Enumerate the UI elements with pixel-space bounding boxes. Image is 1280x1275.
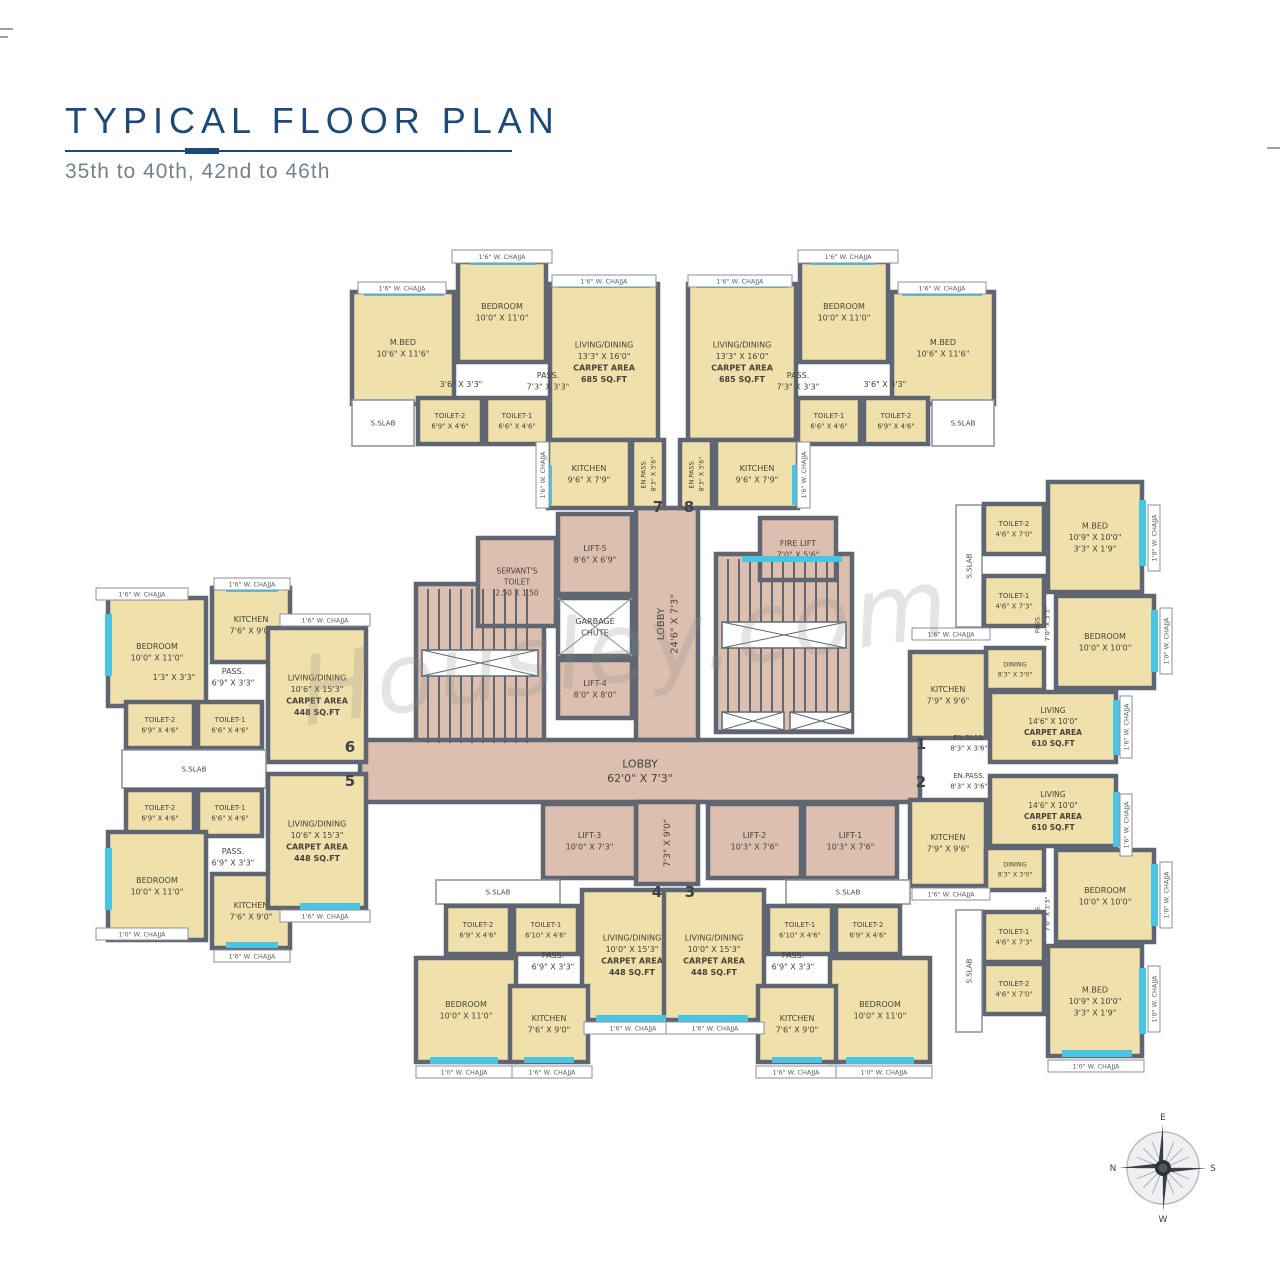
room-label-sslab-56: S.SLAB xyxy=(182,765,207,773)
chajja-label: 1'6" W. CHAJJA xyxy=(358,282,446,294)
room-toilet2-3: TOILET-26'9" X 4'6" xyxy=(836,906,900,954)
room-label-corridor-lifts: 7'3" X 9'0" xyxy=(663,819,673,867)
chajja-label: 1'6" W. CHAJJA xyxy=(280,910,370,922)
chajja-label: 1'6" W. CHAJJA xyxy=(452,250,552,263)
room-label-enpass-2: EN.PASS.8'3" X 3'6" xyxy=(950,772,987,791)
room-living-7: LIVING/DINING13'3" X 16'0"CARPET AREA685… xyxy=(550,284,658,440)
svg-text:1'6" W. CHAJJA: 1'6" W. CHAJJA xyxy=(825,253,873,261)
chajja-label: 1'6" W. CHAJJA xyxy=(512,1066,592,1078)
chajja-label: 1'6" W. CHAJJA xyxy=(96,588,188,600)
svg-text:1'0" W. CHAJJA: 1'0" W. CHAJJA xyxy=(1073,1062,1121,1070)
chajja-label: 1'6" W. CHAJJA xyxy=(214,578,290,590)
window-strip xyxy=(1113,700,1120,755)
room-kitchen-3: KITCHEN7'6" X 9'0" xyxy=(758,986,836,1062)
svg-text:1'6" W. CHAJJA: 1'6" W. CHAJJA xyxy=(919,284,967,292)
svg-text:1'0" W. CHAJJA: 1'0" W. CHAJJA xyxy=(1150,975,1158,1023)
landing-box xyxy=(790,712,852,730)
room-mbed-8: M.BED10'6" X 11'6" xyxy=(892,292,994,404)
room-lift-2: LIFT-210'3" X 7'6" xyxy=(708,804,801,878)
room-bedroom-3: BEDROOM10'0" X 11'0" xyxy=(830,958,930,1062)
window-strip xyxy=(596,1015,666,1022)
room-label-sslab-2: S.SLAB xyxy=(965,958,973,983)
window-strip xyxy=(772,1057,822,1063)
room-sslab-3: S.SLAB xyxy=(786,880,910,904)
room-toilet2-8: TOILET-26'9" X 4'6" xyxy=(864,398,928,444)
svg-text:1'6" W. CHAJJA: 1'6" W. CHAJJA xyxy=(717,277,765,285)
room-bedroom-5: BEDROOM10'0" X 11'0" xyxy=(108,832,206,940)
room-bedroom-2: BEDROOM10'0" X 10'0" xyxy=(1056,850,1154,942)
svg-text:1'0" W. CHAJJA: 1'0" W. CHAJJA xyxy=(861,1068,909,1076)
svg-text:1'0" W. CHAJJA: 1'0" W. CHAJJA xyxy=(119,930,167,938)
compass-label-right: S xyxy=(1210,1164,1216,1174)
svg-text:1'0" W. CHAJJA: 1'0" W. CHAJJA xyxy=(1150,514,1158,562)
room-toilet1-7: TOILET-16'6" X 4'6" xyxy=(486,398,548,444)
svg-text:1'6" W. CHAJJA: 1'6" W. CHAJJA xyxy=(119,590,167,598)
room-living-8: LIVING/DINING13'3" X 16'0"CARPET AREA685… xyxy=(688,284,796,440)
svg-text:1'6" W. CHAJJA: 1'6" W. CHAJJA xyxy=(692,1024,740,1032)
window-strip xyxy=(1113,792,1120,847)
svg-text:1'6" W. CHAJJA: 1'6" W. CHAJJA xyxy=(229,580,277,588)
room-label-enpass-1: EN.PASS.8'3" X 3'6" xyxy=(950,734,987,753)
room-toilet2-2: TOILET-24'6" X 7'0" xyxy=(984,964,1044,1014)
room-sslab-7: S.SLAB xyxy=(352,400,414,446)
room-label-pass-6: PASS.6'9" X 3'3" xyxy=(212,667,255,688)
window-strip xyxy=(1151,864,1158,926)
room-sslab-4: S.SLAB xyxy=(436,880,560,904)
room-living-1: LIVING14'6" X 10'0"CARPET AREA610 SQ.FT xyxy=(990,692,1116,762)
room-bedroom-7: BEDROOM10'0" X 11'0" xyxy=(458,262,546,362)
chajja-label: 1'6" W. CHAJJA xyxy=(666,1022,764,1034)
svg-text:1'6" W. CHAJJA: 1'6" W. CHAJJA xyxy=(1122,801,1130,849)
compass-rose: ESWN xyxy=(1110,1113,1217,1225)
compass-label-top: E xyxy=(1160,1113,1166,1123)
room-sslab-8: S.SLAB xyxy=(932,400,994,446)
room-pass-6: PASS.6'9" X 3'3" xyxy=(212,667,255,688)
room-toilet2-4: TOILET-26'9" X 4'6" xyxy=(446,906,510,954)
svg-text:1'0" W. CHAJJA: 1'0" W. CHAJJA xyxy=(1162,617,1170,665)
room-living-5: LIVING/DINING10'6" X 15'3"CARPET AREA448… xyxy=(268,774,366,908)
chajja-label: 1'6" W. CHAJJA xyxy=(912,888,990,900)
room-toilet1-5: TOILET-16'6" X 4'6" xyxy=(198,790,262,836)
chajja-label: 1'6" W. CHAJJA xyxy=(756,1066,836,1078)
room-sslab-1: S.SLAB xyxy=(956,505,982,627)
landing-box xyxy=(722,712,784,730)
window-strip xyxy=(678,1015,748,1022)
svg-text:1'6" W. CHAJJA: 1'6" W. CHAJJA xyxy=(800,451,808,499)
unit-number-3: 3 xyxy=(685,883,695,901)
room-dining-2: DINING8'3" X 3'0" xyxy=(986,848,1044,890)
room-sslab-56: S.SLAB xyxy=(122,750,266,788)
svg-text:1'6" W. CHAJJA: 1'6" W. CHAJJA xyxy=(302,912,350,920)
room-kitchen-4: KITCHEN7'6" X 9'0" xyxy=(510,986,588,1062)
room-label-sslab-1: S.SLAB xyxy=(965,553,973,578)
chajja-label: 1'6" W. CHAJJA xyxy=(1120,794,1132,856)
room-label-dim-8: 3'6" X 3'3" xyxy=(864,380,907,389)
chajja-label: 1'6" W. CHAJJA xyxy=(797,442,810,508)
room-toilet1-3: TOILET-16'10" X 4'6" xyxy=(768,906,832,954)
chajja-label: 1'0" W. CHAJJA xyxy=(1160,862,1172,928)
compass-label-left: N xyxy=(1110,1164,1117,1174)
unit-number-4: 4 xyxy=(652,883,662,901)
room-label-dim-7: 3'6" X 3'3" xyxy=(440,380,483,389)
room-lift-5: LIFT-58'6" X 6'9" xyxy=(558,514,632,594)
room-lift-3: LIFT-310'0" X 7'3" xyxy=(543,804,636,878)
room-sslab-2: S.SLAB xyxy=(956,910,982,1032)
room-bedroom-1: BEDROOM10'0" X 10'0" xyxy=(1056,596,1154,688)
svg-text:1'0" W. CHAJJA: 1'0" W. CHAJJA xyxy=(441,1068,489,1076)
room-pass-5: PASS.6'9" X 3'3" xyxy=(212,847,255,868)
chajja-label: 1'0" W. CHAJJA xyxy=(96,928,188,940)
window-strip xyxy=(524,1057,574,1063)
chajja-label: 1'0" W. CHAJJA xyxy=(836,1066,932,1078)
room-bedroom-6: BEDROOM10'0" X 11'0" xyxy=(108,598,206,706)
svg-text:1'6" W. CHAJJA: 1'6" W. CHAJJA xyxy=(773,1068,821,1076)
room-toilet2-5: TOILET-26'9" X 4'6" xyxy=(126,790,194,836)
chajja-label: 1'6" W. CHAJJA xyxy=(688,275,792,287)
room-label-sslab-4: S.SLAB xyxy=(486,888,511,896)
svg-text:1'6" W. CHAJJA: 1'6" W. CHAJJA xyxy=(529,1068,577,1076)
chajja-label: 1'0" W. CHAJJA xyxy=(416,1066,512,1078)
room-toilet1-4: TOILET-16'10" X 4'6" xyxy=(514,906,578,954)
room-toilet2-7: TOILET-26'9" X 4'6" xyxy=(418,398,482,444)
room-kitchen-8: KITCHEN9'6" X 7'9" xyxy=(716,440,798,508)
window-strip xyxy=(1139,968,1146,1034)
room-mbed-2: M.BED10'9" X 10'0"3'3" X 1'9" xyxy=(1048,946,1142,1056)
svg-text:1'6" W. CHAJJA: 1'6" W. CHAJJA xyxy=(479,253,527,261)
room-toilet1-8: TOILET-16'6" X 4'6" xyxy=(798,398,860,444)
svg-text:1'6" W. CHAJJA: 1'6" W. CHAJJA xyxy=(229,952,277,960)
room-dim-8: 3'6" X 3'3" xyxy=(864,380,907,389)
unit-number-2: 2 xyxy=(916,773,926,791)
chajja-label: 1'0" W. CHAJJA xyxy=(1148,966,1160,1032)
room-bedroom-8: BEDROOM10'0" X 11'0" xyxy=(800,262,888,362)
window-strip xyxy=(430,1057,498,1064)
room-toilet1-6: TOILET-16'6" X 4'6" xyxy=(198,702,262,748)
unit-number-5: 5 xyxy=(345,772,355,790)
room-living-2: LIVING14'6" X 10'0"CARPET AREA610 SQ.FT xyxy=(990,776,1116,846)
chajja-label: 1'6" W. CHAJJA xyxy=(280,614,370,626)
room-dim-7: 3'6" X 3'3" xyxy=(440,380,483,389)
chajja-label: 1'0" W. CHAJJA xyxy=(1048,1060,1144,1072)
room-label-sslab-8: S.SLAB xyxy=(951,419,976,427)
svg-text:1'6" W. CHAJJA: 1'6" W. CHAJJA xyxy=(928,890,976,898)
floor-plan-drawing: LOBBY24'6" X 7'3"LOBBY62'0" X 7'3"7'3" X… xyxy=(0,0,1280,1275)
svg-text:1'6" W. CHAJJA: 1'6" W. CHAJJA xyxy=(1122,703,1130,751)
room-toilet2-6: TOILET-26'9" X 4'6" xyxy=(126,702,194,748)
window-strip xyxy=(742,556,842,562)
window-strip xyxy=(226,942,278,948)
svg-text:1'6" W. CHAJJA: 1'6" W. CHAJJA xyxy=(581,277,629,285)
room-lobby-horizontal: LOBBY62'0" X 7'3" xyxy=(360,740,920,802)
room-lift-1: LIFT-110'3" X 7'6" xyxy=(804,804,897,878)
svg-text:1'6" W. CHAJJA: 1'6" W. CHAJJA xyxy=(539,451,547,499)
room-dim-6: 1'3" X 3'3" xyxy=(153,673,196,682)
svg-text:1'0" W. CHAJJA: 1'0" W. CHAJJA xyxy=(1162,871,1170,919)
chajja-label: 1'6" W. CHAJJA xyxy=(214,950,290,962)
window-strip xyxy=(1139,500,1146,566)
room-label-dim-6: 1'3" X 3'3" xyxy=(153,673,196,682)
chajja-label: 1'6" W. CHAJJA xyxy=(798,250,898,263)
chajja-label: 1'6" W. CHAJJA xyxy=(898,282,986,294)
room-enpass-2: EN.PASS.8'3" X 3'6" xyxy=(950,772,987,791)
room-corridor-lifts: 7'3" X 9'0" xyxy=(636,802,698,884)
window-strip xyxy=(1151,610,1158,672)
chajja-label: 1'6" W. CHAJJA xyxy=(1120,696,1132,758)
chajja-label: 1'0" W. CHAJJA xyxy=(1160,608,1172,674)
room-enpass-1: EN.PASS.8'3" X 3'6" xyxy=(950,734,987,753)
room-kitchen-7: KITCHEN9'6" X 7'9" xyxy=(548,440,630,508)
room-kitchen-2: KITCHEN7'9" X 9'6" xyxy=(910,800,986,886)
compass-label-bottom: W xyxy=(1159,1215,1168,1225)
room-mbed-1: M.BED10'9" X 10'0"3'3" X 1'9" xyxy=(1048,482,1142,592)
chajja-label: 1'6" W. CHAJJA xyxy=(552,275,656,287)
room-label-sslab-3: S.SLAB xyxy=(836,888,861,896)
room-living-3: LIVING/DINING10'0" X 15'3"CARPET AREA448… xyxy=(664,890,764,1020)
window-strip xyxy=(846,1057,914,1064)
room-dining-1: DINING8'3" X 3'0" xyxy=(986,648,1044,690)
svg-text:1'6" W. CHAJJA: 1'6" W. CHAJJA xyxy=(379,284,427,292)
unit-number-7: 7 xyxy=(653,498,663,516)
room-bedroom-4: BEDROOM10'0" X 11'0" xyxy=(416,958,516,1062)
window-strip xyxy=(105,848,112,910)
room-toilet2-1: TOILET-24'6" X 7'0" xyxy=(984,504,1044,554)
chajja-label: 1'6" W. CHAJJA xyxy=(536,442,549,508)
unit-number-1: 1 xyxy=(916,735,926,753)
room-toilet1-2: TOILET-14'6" X 7'3" xyxy=(984,912,1044,962)
room-kitchen-1: KITCHEN7'9" X 9'6" xyxy=(910,652,986,738)
room-label-sslab-7: S.SLAB xyxy=(371,419,396,427)
svg-text:1'6" W. CHAJJA: 1'6" W. CHAJJA xyxy=(302,616,350,624)
window-strip xyxy=(300,903,360,910)
unit-number-8: 8 xyxy=(684,498,694,516)
window-strip xyxy=(105,614,112,676)
chajja-label: 1'0" W. CHAJJA xyxy=(1148,505,1160,571)
room-label-pass-5: PASS.6'9" X 3'3" xyxy=(212,847,255,868)
window-strip xyxy=(1062,1050,1132,1057)
svg-text:1'6" W. CHAJJA: 1'6" W. CHAJJA xyxy=(610,1024,658,1032)
